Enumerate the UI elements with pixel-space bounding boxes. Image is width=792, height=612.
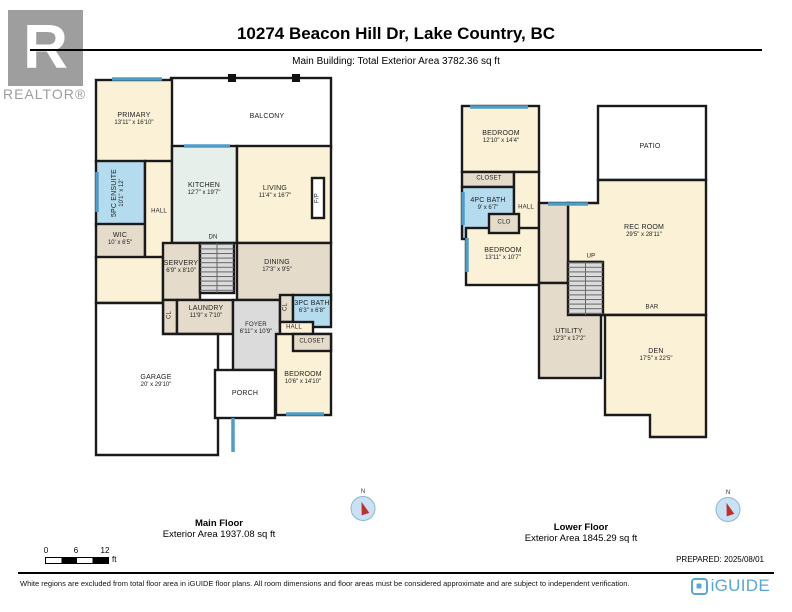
lower-floor-area: Exterior Area 1845.29 sq ft: [525, 533, 637, 544]
room-label-cl-laundry: CL: [166, 311, 173, 319]
compass-lower: N: [716, 490, 741, 522]
iguide-brand: iGUIDE: [691, 576, 770, 596]
compass-needle-icon: [357, 500, 369, 515]
room-label-bar: BAR: [646, 304, 659, 311]
balcony-post: [292, 74, 300, 82]
balcony-post: [228, 74, 236, 82]
room-label-living: LIVING11'4" x 16'7": [259, 185, 291, 201]
main-floor-caption: Main Floor Exterior Area 1937.08 sq ft: [163, 518, 275, 540]
room-label-wic: WIC10' x 6'5": [108, 232, 132, 248]
room-label-closet1: CLOSET: [476, 175, 501, 182]
scale-unit: ft: [112, 555, 116, 564]
room-label-cl-bath: CL: [282, 303, 289, 311]
scale-tick-12: 12: [101, 546, 110, 555]
scale-tick-6: 6: [74, 546, 78, 555]
iguide-logo-text: iGUIDE: [711, 576, 770, 596]
room-label-utility: UTILITY12'3" x 17'2": [553, 328, 586, 344]
stairs-dn-label: DN: [208, 234, 217, 241]
room-label-bath3pc: 3PC BATH6'3" x 6'8": [294, 300, 329, 316]
room-label-ensuite: 5PC ENSUITE10'1" x 12': [111, 169, 127, 217]
room-label-kitchen: KITCHEN12'7" x 19'7": [188, 182, 221, 198]
lower-floor-caption: Lower Floor Exterior Area 1845.29 sq ft: [525, 522, 637, 544]
room-label-hall-lf: HALL: [518, 204, 534, 211]
room-label-laundry: LAUNDRY11'9" x 7'10": [189, 305, 224, 321]
main-floor-title: Main Floor: [163, 518, 275, 529]
room-label-garage: GARAGE20' x 29'10": [140, 374, 171, 390]
lower-floor-plan: [462, 106, 706, 437]
floor-plan-page: R REALTOR® 10274 Beacon Hill Dr, Lake Co…: [0, 0, 792, 612]
floor-plan-drawing: [0, 0, 792, 612]
scale-tick-0: 0: [44, 546, 48, 555]
compass-n-label: N: [726, 490, 730, 496]
compass-needle-icon: [722, 501, 734, 516]
main-floor-plan: [96, 74, 331, 455]
room-label-bedroom: BEDROOM10'6" x 14'10": [284, 371, 322, 387]
footer-disclaimer: White regions are excluded from total fl…: [20, 579, 640, 588]
room-label-closet: CLOSET: [299, 338, 324, 345]
prepared-date: PREPARED: 2025/08/01: [676, 555, 764, 564]
footer-divider: [18, 572, 774, 574]
room-label-clo: CLO: [498, 219, 511, 226]
stairs-up-label: UP: [587, 253, 596, 260]
room-label-porch: PORCH: [232, 390, 258, 398]
compass-icon: [716, 497, 741, 522]
room-label-primary: PRIMARY13'11" x 16'10": [114, 112, 153, 128]
room-label-patio: PATIO: [640, 143, 661, 151]
room-label-fireplace: F/P: [314, 193, 321, 203]
room-label-hall-lower: HALL: [286, 324, 302, 331]
room-label-bedroom2: BEDROOM13'11" x 10'7": [484, 247, 522, 263]
room-mudhall-shape: [96, 257, 163, 303]
room-label-bedroom1: BEDROOM12'10" x 14'4": [482, 130, 520, 146]
room-label-foyer: FOYER6'11" x 10'9": [240, 322, 272, 336]
lower-floor-title: Lower Floor: [525, 522, 637, 533]
room-label-dining: DINING17'3" x 9'5": [262, 259, 292, 275]
room-label-den: DEN17'5" x 22'5": [640, 348, 673, 364]
main-floor-area: Exterior Area 1937.08 sq ft: [163, 529, 275, 540]
compass-n-label: N: [361, 489, 365, 495]
room-label-recroom: REC ROOM29'5" x 28'11": [624, 224, 664, 240]
room-label-bath4pc: 4PC BATH9' x 6'7": [470, 197, 505, 213]
scale-bar: [45, 557, 109, 564]
compass-icon: [351, 496, 376, 521]
room-label-servery: SERVERY6'9" x 8'10": [164, 260, 199, 276]
iguide-logo-icon: [691, 578, 708, 595]
room-den-shape: [605, 315, 706, 437]
room-label-hall-upper: HALL: [151, 208, 167, 215]
compass-main: N: [351, 489, 376, 521]
room-label-balcony: BALCONY: [250, 113, 285, 121]
room-corridor-shape: [539, 203, 568, 283]
